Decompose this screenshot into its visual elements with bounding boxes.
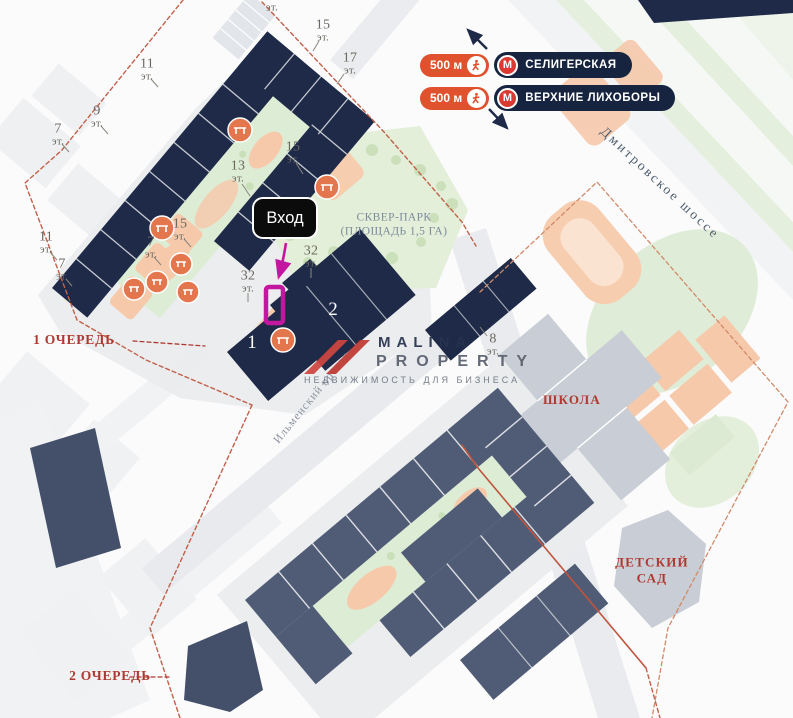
park-label-line2: (ПЛОЩАДЬ 1,5 ГА) <box>341 225 448 239</box>
distance-text: 500 м <box>430 91 462 105</box>
metro-station-likhobory[interactable]: М ВЕРХНИЕ ЛИХОБОРЫ <box>494 85 675 111</box>
walking-icon <box>467 56 486 75</box>
brand-logo: MALINA PROPERTY НЕДВИЖИМОСТЬ ДЛЯ БИЗНЕСА <box>296 330 586 388</box>
site-plan-map: эт.15эт.17эт.11эт.9эт.7эт.15эт.13эт.15эт… <box>0 0 793 718</box>
distance-text: 500 м <box>430 58 462 72</box>
tower1-label: 1 <box>247 332 257 354</box>
metro-icon: М <box>497 88 518 109</box>
metro-row-seligerskaya: 500 м М СЕЛИГЕРСКАЯ <box>420 52 632 78</box>
distance-badge: 500 м <box>420 54 489 77</box>
metro-station-seligerskaya[interactable]: М СЕЛИГЕРСКАЯ <box>494 52 631 78</box>
school-label: ШКОЛА <box>543 392 601 408</box>
logo-name-line2: PROPERTY <box>376 353 536 371</box>
logo-name-line1: MALINA <box>378 334 472 351</box>
kindergarten-label-line1: ДЕТСКИЙ <box>615 554 689 570</box>
entrance-tooltip[interactable]: Вход <box>252 197 318 239</box>
park-label: СКВЕР-ПАРК (ПЛОЩАДЬ 1,5 ГА) <box>341 211 448 240</box>
park-label-line1: СКВЕР-ПАРК <box>341 211 448 225</box>
phase1-label: 1 ОЧЕРЕДЬ <box>33 332 115 348</box>
metro-row-likhobory: 500 м М ВЕРХНИЕ ЛИХОБОРЫ <box>420 85 675 111</box>
logo-chevron-icon <box>300 334 378 378</box>
kindergarten-label: ДЕТСКИЙ САД <box>615 554 689 585</box>
kindergarten-label-line2: САД <box>615 570 689 586</box>
distance-badge: 500 м <box>420 87 489 110</box>
logo-tagline: НЕДВИЖИМОСТЬ ДЛЯ БИЗНЕСА <box>304 375 520 385</box>
arrow-northwest <box>468 30 487 49</box>
phase2-label: 2 ОЧЕРЕДЬ <box>69 668 151 684</box>
station-name: СЕЛИГЕРСКАЯ <box>525 59 616 71</box>
metro-arrows <box>468 30 507 128</box>
walking-icon <box>467 89 486 108</box>
station-name: ВЕРХНИЕ ЛИХОБОРЫ <box>525 92 660 104</box>
arrow-southeast <box>489 109 507 128</box>
tower2-label: 2 <box>328 299 338 321</box>
metro-icon: М <box>497 55 518 76</box>
